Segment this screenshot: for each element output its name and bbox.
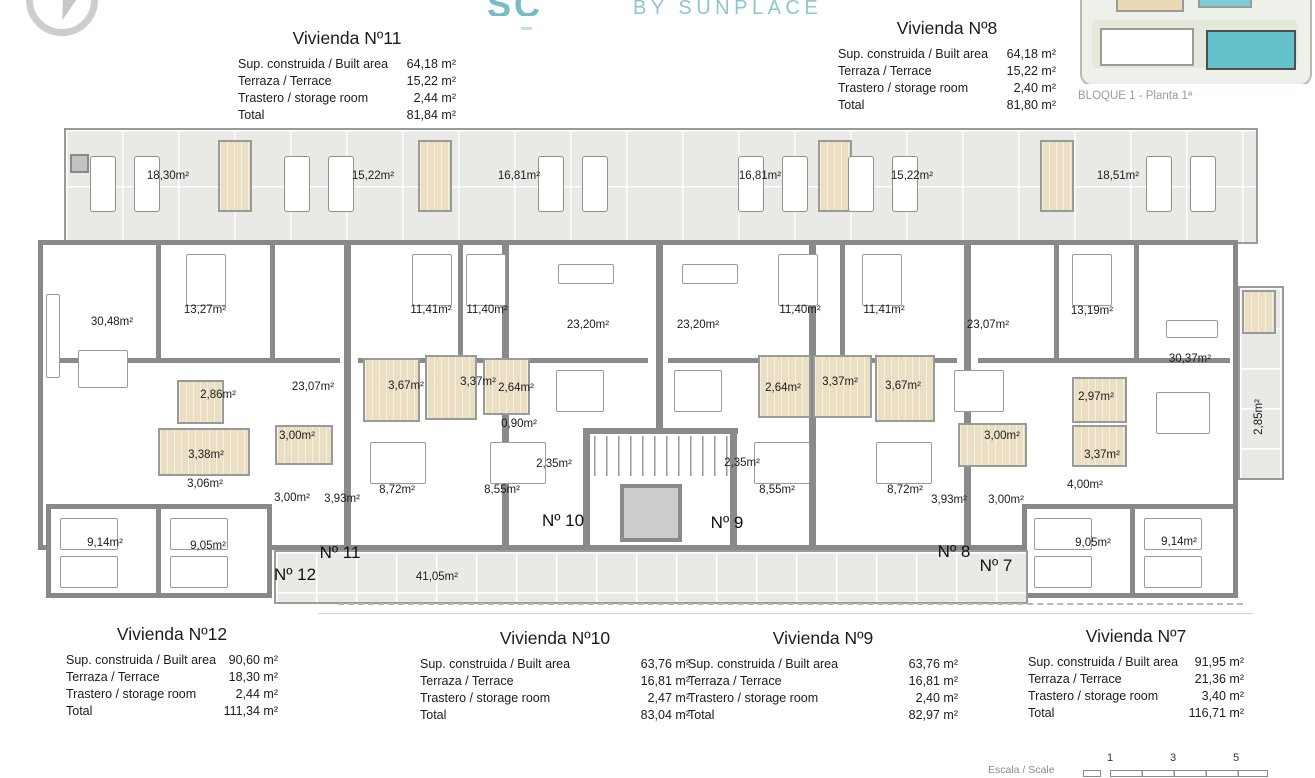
- furniture-item: [556, 370, 604, 412]
- site-location-map: [1078, 0, 1315, 84]
- area-row: Total81,84 m²: [238, 107, 456, 124]
- area-row-label: Terraza / Terrace: [1028, 671, 1122, 688]
- room-area-label: 3,37m²: [1084, 449, 1120, 461]
- stairs: [594, 436, 728, 476]
- room-area-label: 0,90m²: [501, 418, 537, 430]
- area-row: Total82,97 m²: [688, 707, 958, 724]
- furniture-item: [78, 350, 128, 388]
- room-area-label: 13,27m²: [184, 304, 226, 316]
- area-row-label: Terraza / Terrace: [838, 63, 932, 80]
- area-row-value: 63,76 m²: [909, 656, 958, 673]
- room-area-label: 9,14m²: [87, 537, 123, 549]
- room-area-label: 23,20m²: [567, 319, 609, 331]
- area-row-label: Sup. construida / Built area: [688, 656, 838, 673]
- area-row-label: Sup. construida / Built area: [66, 652, 216, 669]
- room-area-label: 15,22m²: [891, 170, 933, 182]
- furniture-item: [682, 264, 738, 284]
- area-row-value: 2,44 m²: [236, 686, 278, 703]
- area-row-value: 2,47 m²: [648, 690, 690, 707]
- room-area-label: 3,38m²: [188, 449, 224, 461]
- unit-number-label: Nº 7: [980, 556, 1013, 576]
- site-map-building-partial: [1116, 0, 1184, 12]
- site-map-building-other: [1100, 28, 1194, 66]
- unit-number-label: Nº 8: [938, 542, 971, 562]
- sun-lounger-icon: [90, 156, 116, 212]
- furniture-item: [876, 442, 932, 484]
- unit-table-title: Vivienda Nº9: [688, 628, 958, 649]
- room-area-label: 3,67m²: [885, 380, 921, 392]
- area-row-value: 91,95 m²: [1195, 654, 1244, 671]
- area-row: Sup. construida / Built area64,18 m²: [238, 56, 456, 73]
- area-row: Total81,80 m²: [838, 97, 1056, 114]
- wall-segment: [1130, 509, 1135, 593]
- planter: [70, 154, 89, 173]
- area-row: Terraza / Terrace16,81 m²: [420, 673, 690, 690]
- furniture-item: [60, 556, 118, 588]
- room-area-label: 8,55m²: [759, 484, 795, 496]
- area-row-label: Terraza / Terrace: [420, 673, 514, 690]
- room-area-label: 3,00m²: [988, 494, 1024, 506]
- room-area-label: 3,00m²: [274, 492, 310, 504]
- bathroom-storage-floor: [218, 140, 252, 212]
- area-row-value: 90,60 m²: [229, 652, 278, 669]
- room-area-label: 2,64m²: [498, 382, 534, 394]
- room-area-label: 23,07m²: [967, 319, 1009, 331]
- furniture-item: [466, 254, 506, 306]
- room-area-label: 4,00m²: [1067, 479, 1103, 491]
- area-row-value: 16,81 m²: [909, 673, 958, 690]
- furniture-item: [46, 294, 60, 378]
- wall-segment: [1054, 240, 1059, 358]
- sun-lounger-icon: [782, 156, 808, 212]
- compass-needle-icon: [56, 0, 77, 23]
- room-area-label: 3,00m²: [984, 430, 1020, 442]
- area-row-value: 81,80 m²: [1007, 97, 1056, 114]
- area-row-label: Total: [688, 707, 714, 724]
- room-area-label: 18,30m²: [147, 170, 189, 182]
- room-area-label: 23,07m²: [292, 381, 334, 393]
- area-row-value: 83,04 m²: [641, 707, 690, 724]
- area-row-label: Terraza / Terrace: [66, 669, 160, 686]
- sun-lounger-icon: [582, 156, 608, 212]
- area-row: Total83,04 m²: [420, 707, 690, 724]
- access-corridor: [274, 550, 1028, 604]
- area-row: Total111,34 m²: [66, 703, 278, 720]
- scale-tick-label: 1: [1100, 752, 1120, 764]
- room-area-label: 2,86m²: [200, 389, 236, 401]
- room-area-label: 11,41m²: [863, 304, 904, 316]
- room-area-label: 2,64m²: [765, 382, 801, 394]
- unit-table-title: Vivienda Nº10: [420, 628, 690, 649]
- wall-segment: [156, 240, 161, 358]
- furniture-item: [954, 370, 1004, 412]
- area-row: Total116,71 m²: [1028, 705, 1244, 722]
- area-row-label: Sup. construida / Built area: [838, 46, 988, 63]
- room-area-label: 9,05m²: [190, 540, 226, 552]
- building-base-line: [318, 613, 1253, 614]
- area-row-label: Total: [238, 107, 264, 124]
- area-row-label: Sup. construida / Built area: [420, 656, 570, 673]
- area-row-label: Trastero / storage room: [238, 90, 368, 107]
- room-area-label: 11,41m²: [410, 304, 451, 316]
- unit-table-vivienda-8: Vivienda Nº8 Sup. construida / Built are…: [838, 18, 1056, 114]
- area-row-label: Trastero / storage room: [420, 690, 550, 707]
- area-row-value: 81,84 m²: [407, 107, 456, 124]
- sun-lounger-icon: [892, 156, 918, 212]
- bathroom-storage-floor: [1040, 140, 1074, 212]
- room-area-label: 3,67m²: [388, 380, 424, 392]
- area-row-label: Trastero / storage room: [688, 690, 818, 707]
- brand-logo-monogram: SC: [487, 0, 597, 16]
- room-area-label: 3,00m²: [279, 430, 315, 442]
- furniture-item: [170, 556, 228, 588]
- wall-segment: [270, 240, 275, 358]
- bathroom-storage-floor: [818, 140, 852, 212]
- area-row-value: 15,22 m²: [1007, 63, 1056, 80]
- furniture-item: [370, 442, 426, 484]
- scale-segment: [1083, 770, 1101, 777]
- area-row-value: 82,97 m²: [909, 707, 958, 724]
- area-row-label: Total: [838, 97, 864, 114]
- wall-segment: [583, 428, 590, 550]
- unit-number-label: Nº 11: [320, 543, 361, 563]
- sun-lounger-icon: [538, 156, 564, 212]
- room-area-label: 41,05m²: [416, 571, 458, 583]
- sun-lounger-icon: [134, 156, 160, 212]
- area-row-value: 21,36 m²: [1195, 671, 1244, 688]
- room-area-label: 11,40m²: [466, 304, 507, 316]
- sun-lounger-icon: [328, 156, 354, 212]
- furniture-item: [1166, 320, 1218, 338]
- room-area-label: 8,72m²: [887, 484, 923, 496]
- sun-lounger-icon: [738, 156, 764, 212]
- wall-segment: [516, 358, 648, 363]
- wall-segment: [458, 240, 463, 358]
- area-row-value: 18,30 m²: [229, 669, 278, 686]
- area-row-label: Sup. construida / Built area: [1028, 654, 1178, 671]
- area-row-value: 16,81 m²: [641, 673, 690, 690]
- area-row: Trastero / storage room3,40 m²: [1028, 688, 1244, 705]
- unit-table-vivienda-10: Vivienda Nº10 Sup. construida / Built ar…: [420, 628, 690, 724]
- room-area-label: 3,93m²: [324, 493, 360, 505]
- unit-table-title: Vivienda Nº12: [66, 624, 278, 645]
- room-area-label: 16,81m²: [739, 170, 781, 182]
- scale-tick-label: 5: [1226, 752, 1246, 764]
- unit-table-title: Vivienda Nº11: [238, 28, 456, 49]
- wall-segment: [156, 509, 161, 593]
- wall-segment: [840, 240, 845, 358]
- room-area-label: 3,37m²: [822, 376, 858, 388]
- room-area-label: 2,97m²: [1078, 391, 1114, 403]
- room-area-label: 11,40m²: [779, 304, 820, 316]
- room-area-label: 16,81m²: [498, 170, 540, 182]
- area-row-value: 63,76 m²: [641, 656, 690, 673]
- furniture-item: [674, 370, 722, 412]
- furniture-item: [754, 442, 810, 484]
- area-row: Sup. construida / Built area90,60 m²: [66, 652, 278, 669]
- unit-table-title: Vivienda Nº7: [1028, 626, 1244, 647]
- area-row: Terraza / Terrace21,36 m²: [1028, 671, 1244, 688]
- room-area-label: 8,72m²: [379, 484, 415, 496]
- room-area-label: 3,06m²: [187, 478, 223, 490]
- room-area-label: 23,20m²: [677, 319, 719, 331]
- room-area-label: 2,35m²: [724, 457, 760, 469]
- area-row: Trastero / storage room2,47 m²: [420, 690, 690, 707]
- brand-logo-subtitle: BY SUNPLACE: [633, 0, 822, 20]
- room-area-label: 9,14m²: [1161, 536, 1197, 548]
- room-area-label: 18,51m²: [1097, 170, 1139, 182]
- room-area-label: 30,48m²: [91, 316, 133, 328]
- room-area-label: 3,37m²: [460, 376, 496, 388]
- unit-number-label: Nº 12: [274, 565, 316, 585]
- brand-logo-dash: [521, 27, 532, 30]
- furniture-item: [412, 254, 452, 306]
- area-row-label: Total: [420, 707, 446, 724]
- block-floor-caption: BLOQUE 1 - Planta 1ª: [1078, 90, 1192, 102]
- unit-table-vivienda-9: Vivienda Nº9 Sup. construida / Built are…: [688, 628, 958, 724]
- furniture-item: [1156, 392, 1210, 434]
- sun-lounger-icon: [284, 156, 310, 212]
- room-area-label: 9,05m²: [1075, 537, 1111, 549]
- site-map-building-highlighted: [1206, 30, 1296, 70]
- area-row-value: 15,22 m²: [407, 73, 456, 90]
- furniture-item: [1072, 254, 1112, 306]
- area-row: Terraza / Terrace15,22 m²: [238, 73, 456, 90]
- room-area-label: 13,19m²: [1071, 305, 1113, 317]
- unit-table-vivienda-11: Vivienda Nº11 Sup. construida / Built ar…: [238, 28, 456, 124]
- bathroom-storage-floor: [177, 380, 224, 424]
- scale-tick-label: 3: [1163, 752, 1183, 764]
- room-area-label: 3,93m²: [931, 494, 967, 506]
- room-area-label: 2,35m²: [536, 458, 572, 470]
- area-row-label: Trastero / storage room: [66, 686, 196, 703]
- area-row-value: 64,18 m²: [1007, 46, 1056, 63]
- wall-segment: [1134, 240, 1139, 358]
- area-row-label: Total: [1028, 705, 1054, 722]
- area-row: Sup. construida / Built area64,18 m²: [838, 46, 1056, 63]
- area-row: Sup. construida / Built area63,76 m²: [688, 656, 958, 673]
- furniture-item: [862, 254, 902, 306]
- area-row: Sup. construida / Built area63,76 m²: [420, 656, 690, 673]
- wall-segment: [656, 240, 663, 430]
- unit-table-title: Vivienda Nº8: [838, 18, 1056, 39]
- unit-table-vivienda-7: Vivienda Nº7 Sup. construida / Built are…: [1028, 626, 1244, 722]
- unit-table-vivienda-12: Vivienda Nº12 Sup. construida / Built ar…: [66, 624, 278, 720]
- area-row: Trastero / storage room2,44 m²: [238, 90, 456, 107]
- area-row-value: 111,34 m²: [224, 703, 278, 720]
- site-map-pool: [1198, 0, 1252, 8]
- room-area-label: 30,37m²: [1169, 353, 1211, 365]
- furniture-item: [778, 254, 818, 306]
- scale-bar: Escala / Scale 135: [980, 752, 1315, 778]
- bathroom-storage-floor: [418, 140, 452, 212]
- bathroom-storage-floor: [1242, 290, 1276, 334]
- furniture-item: [1034, 556, 1092, 588]
- room-area-label: 8,55m²: [484, 484, 520, 496]
- compass-icon: [26, 0, 98, 36]
- floor-plan: 2,85m² 18,30m²15,22m²16,81m²16,81m²15,22…: [38, 126, 1280, 610]
- area-row-value: 3,40 m²: [1202, 688, 1244, 705]
- area-row-value: 116,71 m²: [1189, 705, 1244, 722]
- unit-number-label: Nº 9: [711, 513, 744, 533]
- sun-lounger-icon: [1146, 156, 1172, 212]
- furniture-item: [558, 264, 614, 284]
- area-row-label: Trastero / storage room: [1028, 688, 1158, 705]
- area-row-label: Sup. construida / Built area: [238, 56, 388, 73]
- area-row-value: 64,18 m²: [407, 56, 456, 73]
- scale-segments: [1110, 770, 1268, 777]
- area-row-value: 2,44 m²: [414, 90, 456, 107]
- area-row-label: Trastero / storage room: [838, 80, 968, 97]
- area-row: Terraza / Terrace18,30 m²: [66, 669, 278, 686]
- corridor-edge-dashed: [338, 603, 1243, 605]
- area-row: Trastero / storage room2,40 m²: [688, 690, 958, 707]
- sun-lounger-icon: [1190, 156, 1216, 212]
- unit-number-label: Nº 10: [542, 511, 584, 531]
- elevator: [620, 484, 682, 542]
- area-row-label: Total: [66, 703, 92, 720]
- area-row: Terraza / Terrace15,22 m²: [838, 63, 1056, 80]
- scale-label: Escala / Scale: [988, 764, 1055, 776]
- area-row-value: 2,40 m²: [916, 690, 958, 707]
- furniture-item: [186, 254, 226, 306]
- wall-segment: [583, 428, 738, 434]
- room-area-label-vertical: 2,85m²: [1253, 399, 1265, 435]
- furniture-item: [1144, 556, 1202, 588]
- area-row: Terraza / Terrace16,81 m²: [688, 673, 958, 690]
- sun-lounger-icon: [848, 156, 874, 212]
- area-row: Trastero / storage room2,44 m²: [66, 686, 278, 703]
- area-row-label: Terraza / Terrace: [688, 673, 782, 690]
- room-area-label: 15,22m²: [352, 170, 394, 182]
- area-row-label: Terraza / Terrace: [238, 73, 332, 90]
- area-row: Trastero / storage room2,40 m²: [838, 80, 1056, 97]
- area-row: Sup. construida / Built area91,95 m²: [1028, 654, 1244, 671]
- area-row-value: 2,40 m²: [1014, 80, 1056, 97]
